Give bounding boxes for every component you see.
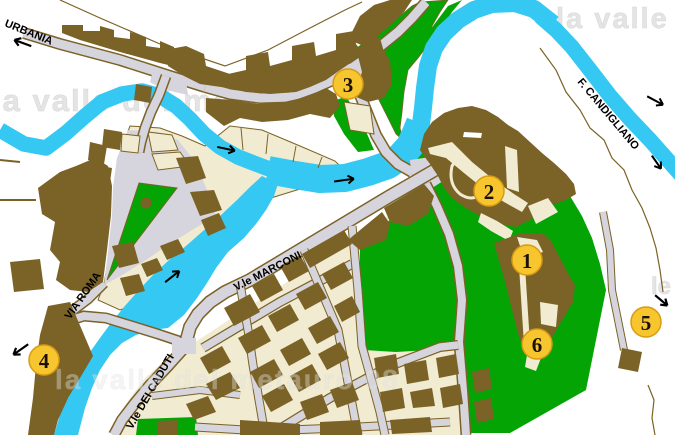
svg-text:3: 3	[343, 73, 354, 97]
svg-text:2: 2	[484, 180, 495, 204]
svg-text:4: 4	[39, 349, 50, 373]
svg-text:5: 5	[641, 311, 652, 335]
svg-text:la valle: la valle	[556, 3, 669, 35]
svg-text:1: 1	[522, 249, 533, 273]
svg-text:la valle del metauro 08: la valle del metauro 08	[55, 364, 400, 395]
svg-text:6: 6	[532, 333, 543, 357]
